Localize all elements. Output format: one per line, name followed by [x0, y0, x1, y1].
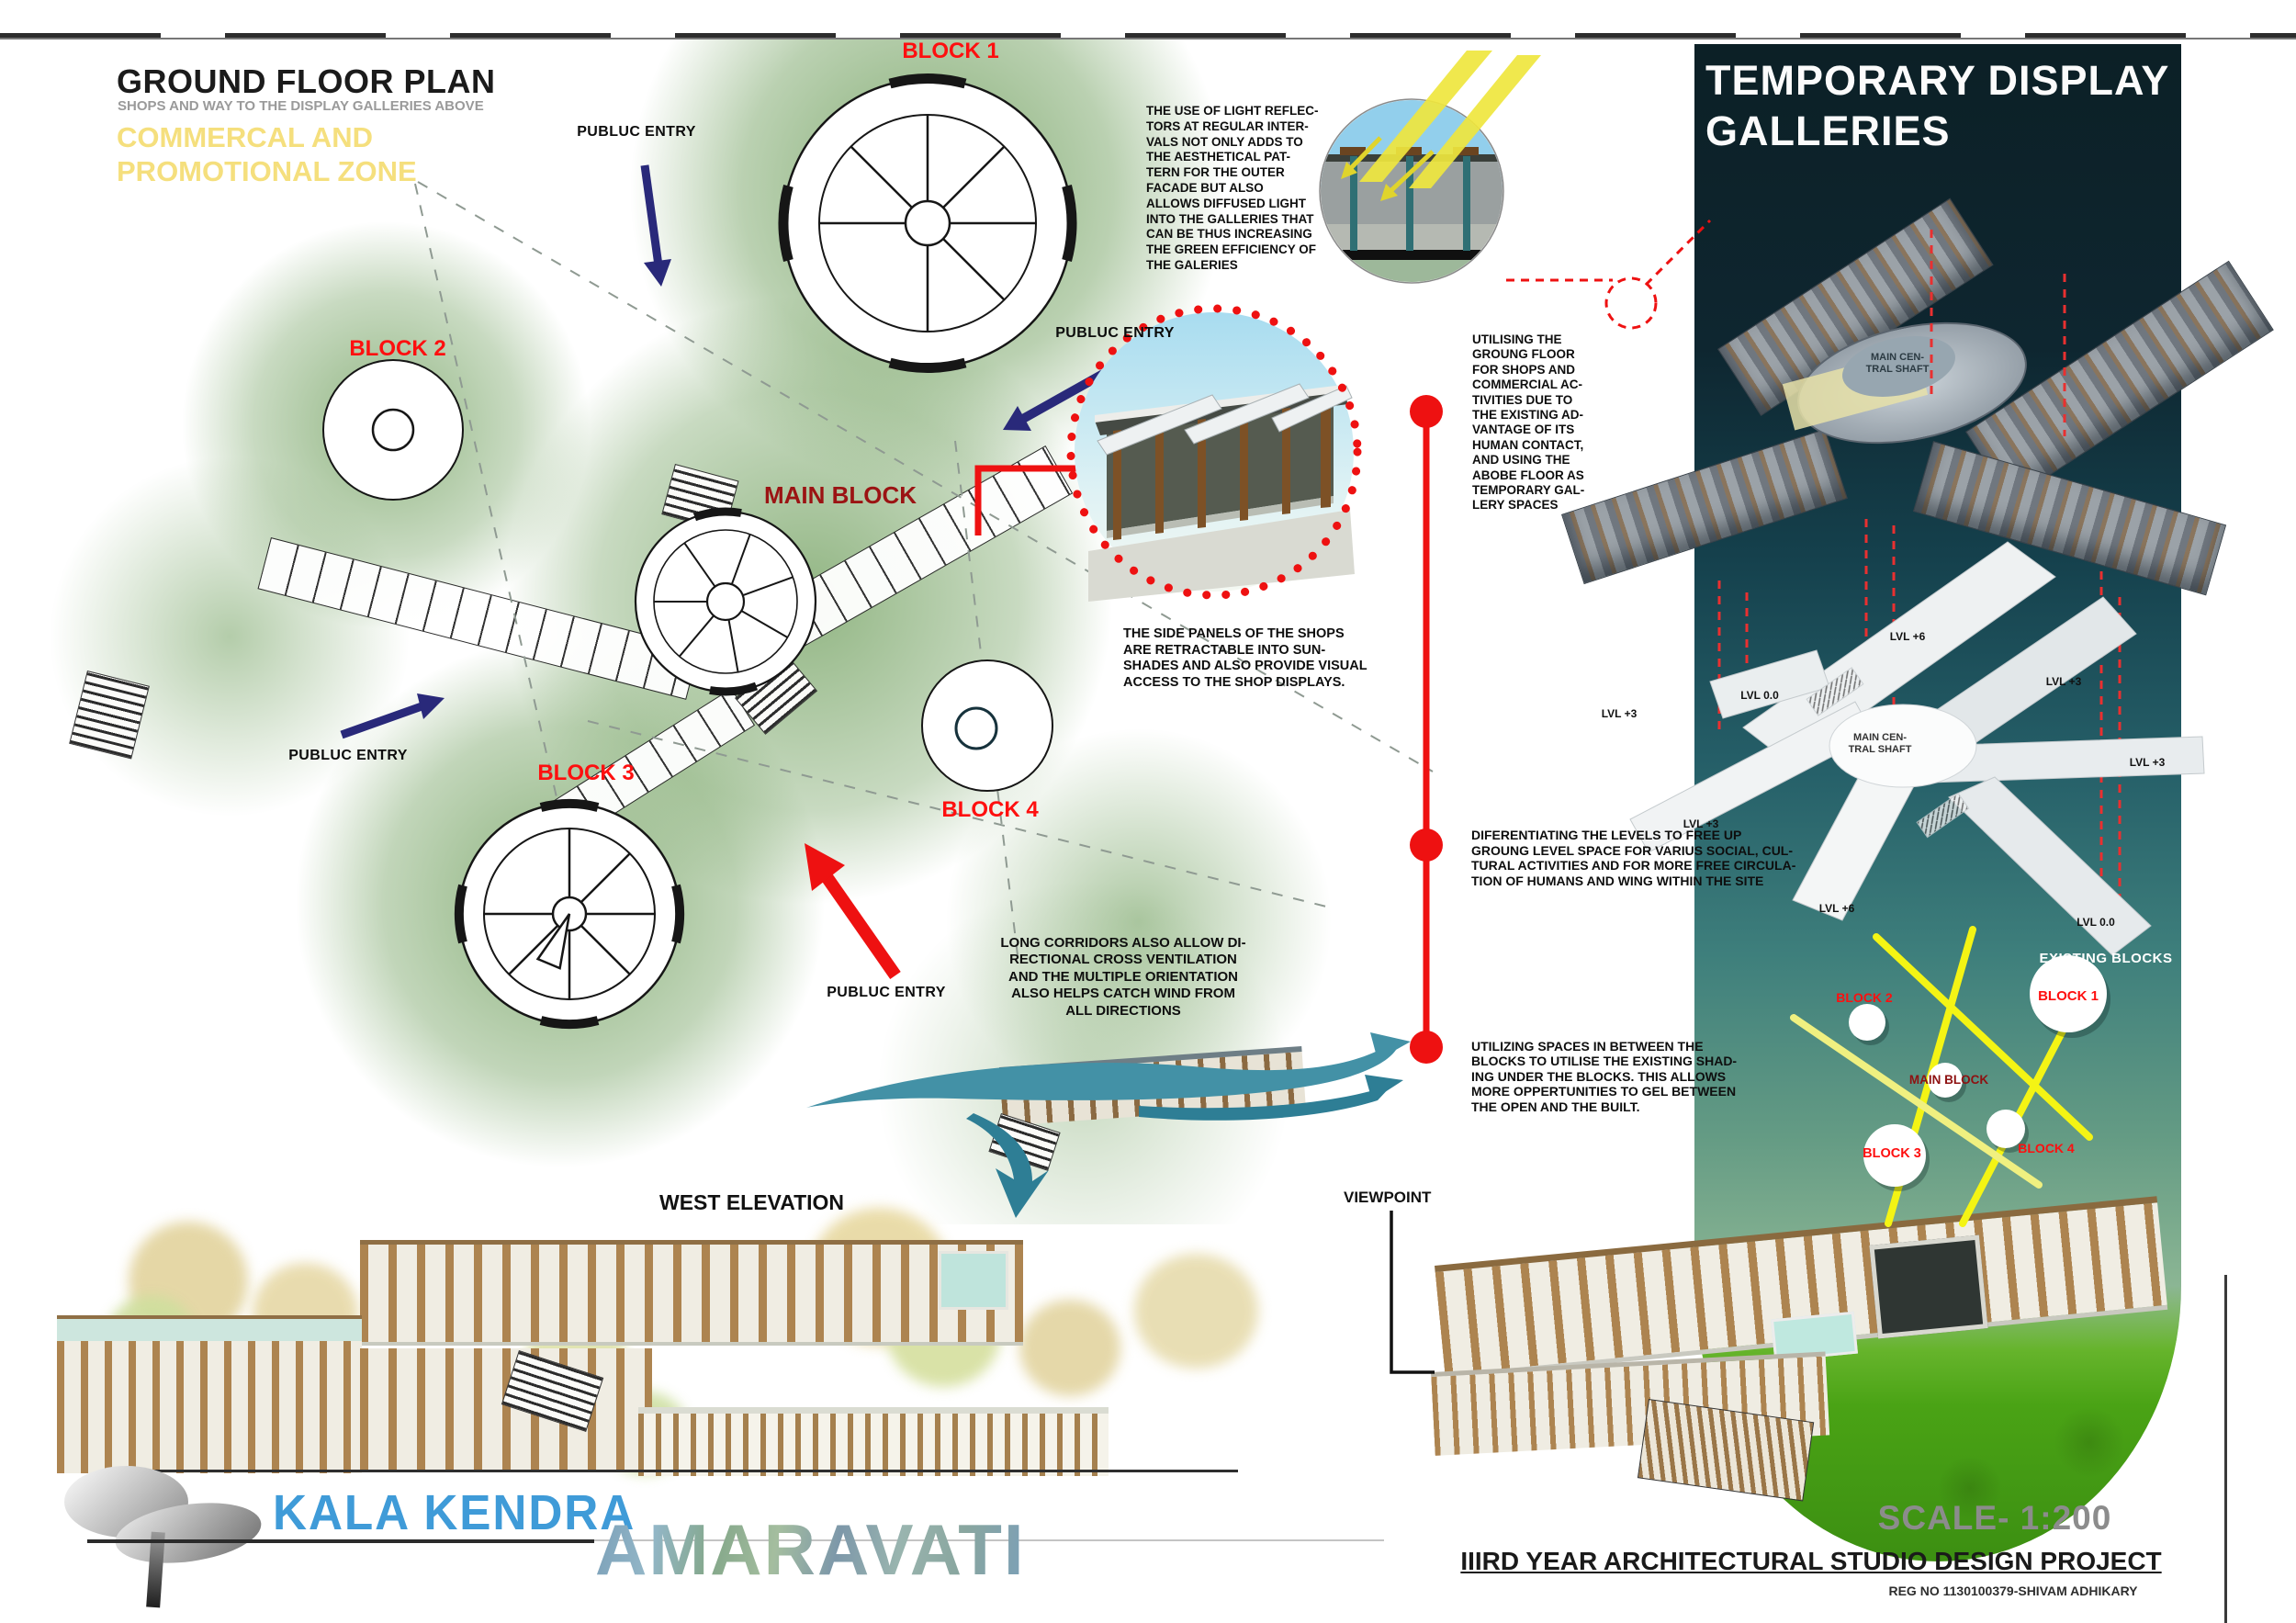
note-utilizing-spaces: UTILIZING SPACES IN BETWEEN THE BLOCKS T… [1471, 1039, 1788, 1114]
page-subtitle: SHOPS AND WAY TO THE DISPLAY GALLERIES A… [118, 98, 484, 114]
lvl-label-6: LVL +6 [1819, 902, 1855, 915]
viewpoint-label: VIEWPOINT [1344, 1189, 1431, 1207]
lvl-label-7: LVL 0.0 [2077, 916, 2115, 929]
tree [1019, 1300, 1120, 1396]
block1-label: BLOCK 1 [902, 39, 998, 64]
diagram-block1-label: BLOCK 1 [2038, 988, 2099, 1004]
block3-label: BLOCK 3 [537, 761, 634, 786]
brand-name: KALA KENDRA [273, 1484, 636, 1541]
city-wordmark: AMARAVATI [595, 1508, 1026, 1592]
note-side-panels: THE SIDE PANELS OF THE SHOPS ARE RETRACT… [1123, 626, 1408, 691]
diagram-block4-label: BLOCK 4 [2018, 1141, 2074, 1155]
note-long-corridors: LONG CORRIDORS ALSO ALLOW DI- RECTIONAL … [976, 935, 1270, 1020]
lvl-label-5: LVL +3 [1683, 817, 1719, 830]
existing-blocks-label: EXISTING BLOCKS [2039, 951, 2172, 966]
perspective-window [1869, 1234, 1987, 1338]
main-block-label: MAIN BLOCK [764, 481, 917, 510]
project-title: IIIRD YEAR ARCHITECTURAL STUDIO DESIGN P… [1460, 1547, 2161, 1576]
lvl-label-3: LVL +3 [1602, 707, 1638, 720]
west-elevation-label: WEST ELEVATION [659, 1190, 844, 1215]
page-title: GROUND FLOOR PLAN [117, 62, 495, 101]
elevation-glass [939, 1251, 1008, 1310]
viewpoint-connector [1391, 1211, 1435, 1372]
reg-number: REG NO 1130100379-SHIVAM ADHIKARY [1888, 1584, 2137, 1598]
lvl-label-4: LVL +3 [2130, 756, 2166, 769]
elevation-mid-block [360, 1348, 652, 1470]
right-panel-title: TEMPORARY DISPLAY GALLERIES [1705, 55, 2169, 156]
entry-label-2: PUBLUC ENTRY [1055, 325, 1175, 342]
note-utilising-ground: UTILISING THE GROUNG FLOOR FOR SHOPS AND… [1472, 332, 1628, 513]
entry-label-3: PUBLUC ENTRY [288, 748, 408, 764]
elevation-upper-bar [360, 1240, 1023, 1346]
block2-label: BLOCK 2 [349, 336, 445, 362]
central-shaft-label-top: MAIN CEN- TRAL SHAFT [1866, 352, 1930, 376]
elevation-ground-line [154, 1470, 1238, 1472]
zone-heading: COMMERCAL AND PROMOTIONAL ZONE [117, 120, 417, 188]
presentation-sheet: GROUND FLOOR PLAN SHOPS AND WAY TO THE D… [0, 0, 2296, 1623]
diagram-main-label: MAIN BLOCK [1909, 1073, 1988, 1087]
lvl-label-2: LVL 0.0 [1740, 689, 1779, 702]
diagram-block3-label: BLOCK 3 [1863, 1146, 1921, 1161]
site-green-gradient [0, 39, 1708, 1224]
entry-label-1: PUBLUC ENTRY [577, 124, 696, 141]
sheet-divider-line [2224, 1275, 2227, 1623]
lvl-label-0: LVL +6 [1890, 630, 1926, 643]
diagram-block2-label: BLOCK 2 [1836, 990, 1892, 1005]
elevation-pergola [638, 1407, 1109, 1476]
note-differentiating: DIFERENTIATING THE LEVELS TO FREE UP GRO… [1471, 828, 1866, 888]
block4-label: BLOCK 4 [941, 797, 1038, 823]
note-light-reflectors: THE USE OF LIGHT REFLEC- TORS AT REGULAR… [1146, 104, 1344, 274]
entry-label-4: PUBLUC ENTRY [827, 985, 946, 1001]
central-shaft-label-axon: MAIN CEN- TRAL SHAFT [1849, 732, 1912, 756]
elevation-left-block [57, 1315, 362, 1473]
tree [1134, 1254, 1258, 1369]
scale-text: SCALE- 1:200 [1878, 1499, 2112, 1538]
lvl-label-1: LVL +3 [2046, 675, 2082, 688]
